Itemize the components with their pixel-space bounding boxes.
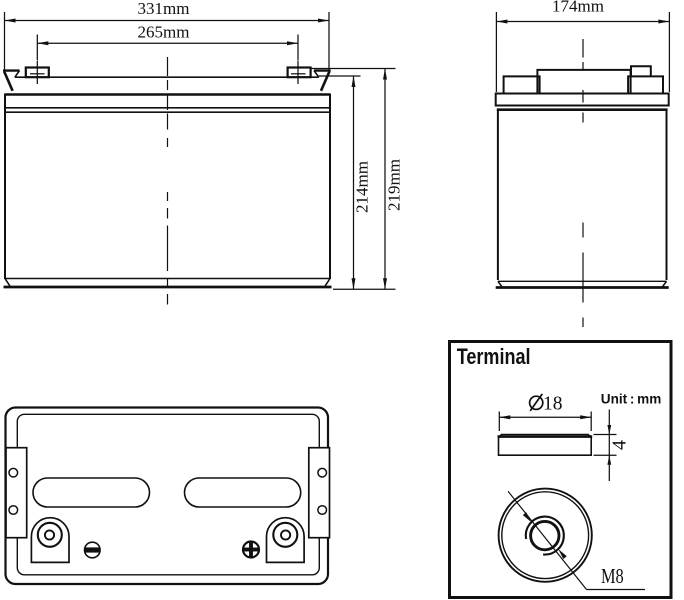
svg-text:M8: M8	[601, 565, 624, 588]
svg-text:265mm: 265mm	[138, 22, 190, 41]
svg-text:Terminal: Terminal	[457, 345, 531, 369]
svg-text:219mm: 219mm	[385, 159, 404, 211]
svg-text:331mm: 331mm	[138, 0, 190, 18]
svg-text:Unit : mm: Unit : mm	[601, 391, 661, 406]
svg-text:214mm: 214mm	[353, 161, 372, 213]
svg-text:18: 18	[543, 394, 563, 415]
svg-text:4: 4	[609, 440, 631, 450]
svg-text:174mm: 174mm	[552, 0, 604, 16]
